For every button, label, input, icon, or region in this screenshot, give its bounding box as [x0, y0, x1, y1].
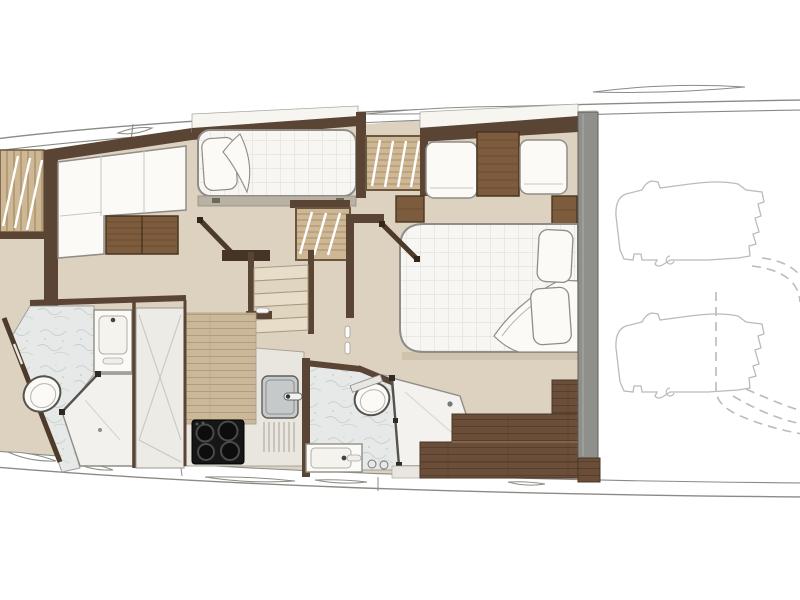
wardrobe-guest	[366, 128, 428, 196]
door-jamb-pill-1	[345, 326, 350, 338]
bow-wall	[0, 232, 44, 239]
master-bed-shadow	[402, 352, 578, 360]
bed-base-latch-1	[212, 198, 220, 203]
hardtop-outline	[593, 85, 745, 92]
stair-wall-right	[308, 250, 314, 334]
master-wardrobe	[578, 112, 600, 482]
door-stop-pill	[256, 308, 269, 313]
guest-side-wall	[356, 112, 366, 198]
master-sofa-right	[520, 140, 567, 194]
yacht-floorplan	[0, 0, 800, 600]
jet-tender-outline-1	[616, 181, 764, 266]
hall-closet	[136, 300, 185, 468]
master-pillow-1	[537, 229, 574, 283]
master-entry-wall	[346, 214, 384, 223]
stair-landing-rail	[222, 250, 270, 261]
deck-lens-top-left	[118, 128, 152, 134]
stairs	[254, 265, 308, 333]
galley-drainer	[264, 422, 294, 452]
mid-vanity	[306, 444, 362, 472]
fwd-shower-drain	[98, 428, 102, 432]
master-pillow-2	[530, 287, 572, 346]
master-nightstand-right	[552, 196, 577, 224]
wardrobe-gray-panel	[578, 112, 598, 458]
master-nightstand-left	[396, 196, 424, 222]
hall-closet-panel	[136, 308, 184, 468]
garage-door-swing-arcs	[716, 258, 800, 434]
mid-shower-head	[447, 401, 452, 406]
tender-garage-outlines	[616, 181, 800, 434]
galley-faucet-base	[286, 394, 290, 398]
bow-storage	[0, 150, 44, 239]
master-entry-wall-v	[346, 223, 354, 318]
galley-plank-floor	[185, 313, 256, 425]
master-mid-table	[477, 132, 519, 196]
door-jamb-pill-2	[345, 342, 350, 354]
cooktop	[192, 420, 244, 464]
jet-tender-outline-2	[616, 313, 764, 398]
master-sofa-left	[426, 142, 477, 198]
floor-plan-image	[0, 0, 800, 600]
fwd-vanity	[94, 310, 132, 372]
wardrobe-base-wood	[578, 458, 600, 482]
wardrobe-hall	[290, 200, 350, 260]
